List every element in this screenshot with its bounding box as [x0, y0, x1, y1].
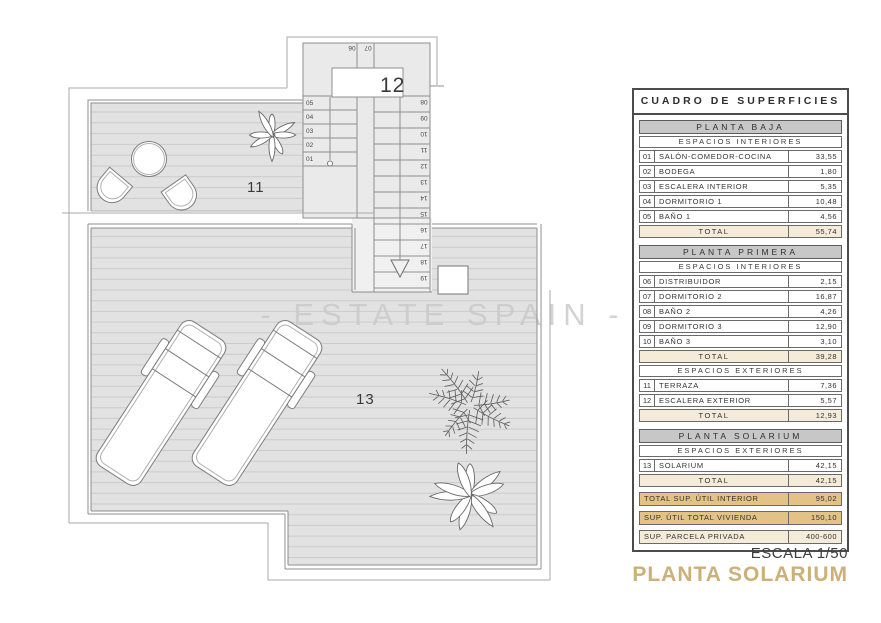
- row-value: 12,90: [788, 321, 841, 332]
- summary-label: TOTAL SUP. ÚTIL INTERIOR: [640, 493, 788, 505]
- row-number: 07: [640, 291, 655, 302]
- row-number: 13: [640, 460, 655, 471]
- room-label-terrace: 11: [247, 179, 265, 196]
- surface-row: 03ESCALERA INTERIOR5,35: [639, 180, 842, 193]
- summary-label: SUP. PARCELA PRIVADA: [640, 531, 788, 543]
- total-value: 55,74: [788, 226, 841, 237]
- row-number: 10: [640, 336, 655, 347]
- row-number: 03: [640, 181, 655, 192]
- svg-text:19: 19: [420, 274, 428, 281]
- summary-row: SUP. PARCELA PRIVADA400-600: [639, 530, 842, 544]
- row-value: 4,26: [788, 306, 841, 317]
- summary-row: TOTAL SUP. ÚTIL INTERIOR95,02: [639, 492, 842, 506]
- row-value: 4,56: [788, 211, 841, 222]
- row-label: TERRAZA: [655, 380, 788, 391]
- scale-label: ESCALA 1/50: [540, 545, 848, 562]
- row-value: 3,10: [788, 336, 841, 347]
- watermark: - ESTATE SPAIN -: [260, 297, 625, 332]
- row-value: 5,35: [788, 181, 841, 192]
- summary-value: 150,10: [788, 512, 841, 524]
- row-label: DORMITORIO 3: [655, 321, 788, 332]
- row-value: 7,36: [788, 380, 841, 391]
- row-label: SOLARIUM: [655, 460, 788, 471]
- surface-row: 10BAÑO 33,10: [639, 335, 842, 348]
- surface-row: 05BAÑO 14,56: [639, 210, 842, 223]
- total-label: TOTAL: [640, 226, 788, 237]
- summary-value: 95,02: [788, 493, 841, 505]
- espacios-band: ESPACIOS INTERIORES: [639, 136, 842, 148]
- espacios-band: ESPACIOS INTERIORES: [639, 261, 842, 273]
- svg-text:15: 15: [420, 210, 428, 217]
- row-label: ESCALERA INTERIOR: [655, 181, 788, 192]
- svg-text:11: 11: [420, 146, 427, 153]
- total-label: TOTAL: [640, 475, 788, 486]
- planta-band: PLANTA PRIMERA: [639, 245, 842, 259]
- espacios-band: ESPACIOS EXTERIORES: [639, 445, 842, 457]
- surface-row: 02BODEGA1,80: [639, 165, 842, 178]
- surface-row: 06DISTRIBUIDOR2,15: [639, 275, 842, 288]
- planta-band: PLANTA SOLARIUM: [639, 429, 842, 443]
- svg-text:09: 09: [420, 114, 428, 121]
- row-number: 02: [640, 166, 655, 177]
- room-label-solarium: 13: [356, 391, 375, 408]
- row-value: 5,57: [788, 395, 841, 406]
- row-value: 33,55: [788, 151, 841, 162]
- surfaces-table: CUADRO DE SUPERFICIES PLANTA BAJAESPACIO…: [632, 88, 849, 552]
- surface-row: 07DORMITORIO 216,87: [639, 290, 842, 303]
- svg-text:02: 02: [306, 142, 314, 149]
- total-value: 39,28: [788, 351, 841, 362]
- svg-text:17: 17: [420, 242, 428, 249]
- row-value: 1,80: [788, 166, 841, 177]
- summary-value: 400-600: [788, 531, 841, 543]
- surface-row: 08BAÑO 24,26: [639, 305, 842, 318]
- total-value: 42,15: [788, 475, 841, 486]
- round-table: [132, 142, 167, 177]
- row-label: DORMITORIO 1: [655, 196, 788, 207]
- total-label: TOTAL: [640, 410, 788, 421]
- floor-plan: - ESTATE SPAIN -: [0, 0, 625, 623]
- drawing-sheet: - ESTATE SPAIN -: [0, 0, 881, 623]
- row-label: DISTRIBUIDOR: [655, 276, 788, 287]
- sheet-title: PLANTA SOLARIUM: [540, 563, 848, 587]
- svg-text:04: 04: [306, 114, 314, 121]
- total-row: TOTAL12,93: [639, 409, 842, 422]
- skylight: [438, 266, 468, 294]
- title-block: ESCALA 1/50 PLANTA SOLARIUM: [540, 545, 848, 587]
- surface-row: 12ESCALERA EXTERIOR5,57: [639, 394, 842, 407]
- row-number: 04: [640, 196, 655, 207]
- total-label: TOTAL: [640, 351, 788, 362]
- row-number: 06: [640, 276, 655, 287]
- svg-text:03: 03: [306, 128, 314, 135]
- summary-row: SUP. ÚTIL TOTAL VIVIENDA150,10: [639, 511, 842, 525]
- surface-row: 04DORMITORIO 110,48: [639, 195, 842, 208]
- room-label-stairs: 12: [380, 74, 405, 97]
- row-value: 42,15: [788, 460, 841, 471]
- row-number: 09: [640, 321, 655, 332]
- svg-text:05: 05: [306, 100, 314, 107]
- total-row: TOTAL42,15: [639, 474, 842, 487]
- surface-row: 13SOLARIUM42,15: [639, 459, 842, 472]
- row-number: 12: [640, 395, 655, 406]
- row-value: 2,15: [788, 276, 841, 287]
- svg-text:13: 13: [420, 178, 428, 185]
- svg-text:18: 18: [420, 258, 428, 265]
- row-label: SALÓN-COMEDOR-COCINA: [655, 151, 788, 162]
- svg-text:10: 10: [420, 130, 428, 137]
- row-number: 05: [640, 211, 655, 222]
- row-number: 01: [640, 151, 655, 162]
- svg-text:07: 07: [364, 44, 372, 51]
- row-label: BAÑO 3: [655, 336, 788, 347]
- svg-text:16: 16: [420, 226, 428, 233]
- svg-text:01: 01: [306, 156, 314, 163]
- surface-row: 09DORMITORIO 312,90: [639, 320, 842, 333]
- svg-text:12: 12: [420, 162, 428, 169]
- summary-label: SUP. ÚTIL TOTAL VIVIENDA: [640, 512, 788, 524]
- row-label: BODEGA: [655, 166, 788, 177]
- row-label: BAÑO 2: [655, 306, 788, 317]
- row-value: 16,87: [788, 291, 841, 302]
- svg-text:08: 08: [420, 98, 428, 105]
- svg-text:06: 06: [348, 44, 356, 51]
- planta-band: PLANTA BAJA: [639, 120, 842, 134]
- row-value: 10,48: [788, 196, 841, 207]
- total-value: 12,93: [788, 410, 841, 421]
- total-row: TOTAL55,74: [639, 225, 842, 238]
- table-body: PLANTA BAJAESPACIOS INTERIORES01SALÓN-CO…: [634, 115, 847, 550]
- row-number: 11: [640, 380, 655, 391]
- total-row: TOTAL39,28: [639, 350, 842, 363]
- surface-row: 11TERRAZA7,36: [639, 379, 842, 392]
- row-label: DORMITORIO 2: [655, 291, 788, 302]
- svg-text:14: 14: [420, 194, 428, 201]
- row-label: ESCALERA EXTERIOR: [655, 395, 788, 406]
- surface-row: 01SALÓN-COMEDOR-COCINA33,55: [639, 150, 842, 163]
- espacios-band: ESPACIOS EXTERIORES: [639, 365, 842, 377]
- row-number: 08: [640, 306, 655, 317]
- table-title: CUADRO DE SUPERFICIES: [634, 90, 847, 115]
- handrail-end: [328, 161, 333, 166]
- row-label: BAÑO 1: [655, 211, 788, 222]
